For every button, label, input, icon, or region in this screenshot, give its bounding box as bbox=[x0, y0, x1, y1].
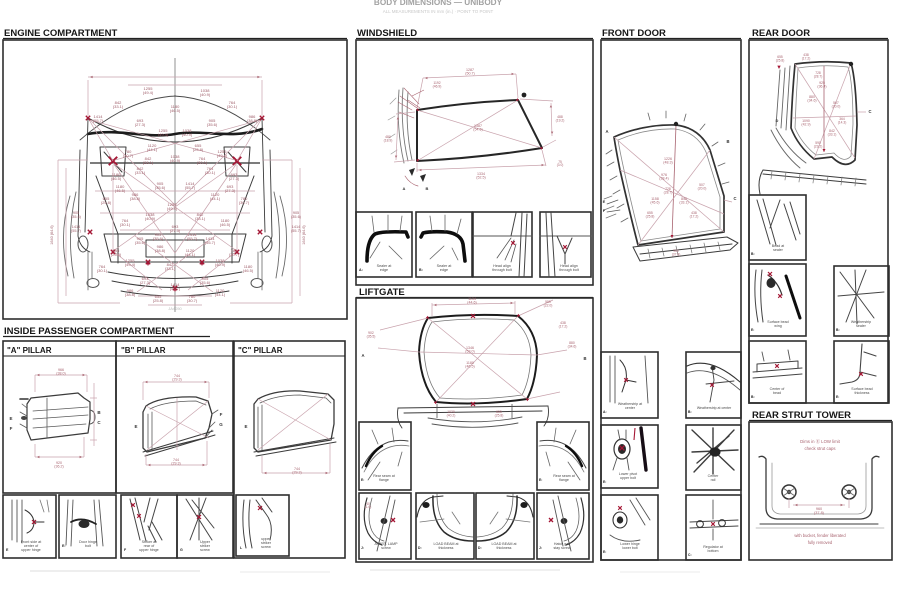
svg-text:A:: A: bbox=[603, 410, 607, 414]
svg-text:"C" PILLAR: "C" PILLAR bbox=[238, 346, 283, 355]
svg-text:upper bolt: upper bolt bbox=[620, 476, 636, 480]
svg-text:(30.7): (30.7) bbox=[187, 298, 198, 303]
svg-text:wing: wing bbox=[774, 324, 781, 328]
svg-text:(40.9): (40.9) bbox=[182, 132, 193, 137]
svg-text:F: F bbox=[10, 426, 13, 431]
svg-text:through bolt: through bolt bbox=[492, 268, 511, 272]
svg-text:(28.7): (28.7) bbox=[814, 74, 823, 78]
svg-text:(40.2): (40.2) bbox=[447, 413, 456, 417]
svg-text:(49.4): (49.4) bbox=[167, 206, 178, 211]
svg-text:(33.1): (33.1) bbox=[113, 104, 124, 109]
svg-text:(40.9): (40.9) bbox=[215, 262, 226, 267]
svg-text:(25.8): (25.8) bbox=[495, 413, 504, 417]
svg-text:sealer: sealer bbox=[856, 324, 867, 328]
svg-text:A: A bbox=[403, 186, 406, 191]
svg-text:(55.7): (55.7) bbox=[170, 286, 181, 291]
svg-text:B:: B: bbox=[751, 252, 755, 256]
svg-text:rail: rail bbox=[711, 478, 716, 482]
svg-text:D: D bbox=[776, 118, 779, 123]
svg-text:(44.1): (44.1) bbox=[185, 252, 196, 257]
svg-text:WINDSHIELD: WINDSHIELD bbox=[357, 28, 417, 39]
svg-text:thickness: thickness bbox=[855, 391, 870, 395]
svg-text:(35.6): (35.6) bbox=[153, 236, 164, 241]
svg-text:(46.5): (46.5) bbox=[170, 108, 181, 113]
svg-text:(27.3): (27.3) bbox=[170, 228, 181, 233]
svg-text:E: E bbox=[244, 424, 247, 429]
svg-text:B: B bbox=[426, 186, 429, 191]
svg-text:bottom: bottom bbox=[708, 549, 719, 553]
svg-text:thickness: thickness bbox=[497, 546, 512, 550]
svg-text:(30.1): (30.1) bbox=[205, 170, 216, 175]
svg-text:C: C bbox=[733, 196, 736, 201]
svg-text:(55.7): (55.7) bbox=[187, 236, 198, 241]
svg-text:with bucket, fender liberated: with bucket, fender liberated bbox=[794, 533, 846, 538]
svg-text:bolt: bolt bbox=[85, 544, 91, 548]
svg-text:(49.4): (49.4) bbox=[217, 153, 228, 158]
svg-text:(40.9): (40.9) bbox=[170, 158, 181, 163]
svg-text:(46.5): (46.5) bbox=[220, 222, 231, 227]
svg-text:1640 (64.6): 1640 (64.6) bbox=[50, 225, 54, 245]
svg-text:(22.0): (22.0) bbox=[544, 303, 553, 307]
svg-text:Dims in Ⓔ LOW limit: Dims in Ⓔ LOW limit bbox=[800, 438, 840, 445]
svg-text:E: E bbox=[9, 416, 12, 421]
svg-text:(30.7): (30.7) bbox=[239, 200, 250, 205]
svg-text:edge: edge bbox=[380, 268, 388, 272]
svg-text:(25.8): (25.8) bbox=[111, 252, 122, 257]
svg-text:(46.5): (46.5) bbox=[243, 268, 254, 273]
svg-text:sealer: sealer bbox=[773, 248, 784, 252]
svg-text:(46.5): (46.5) bbox=[465, 365, 474, 369]
svg-text:(37.8): (37.8) bbox=[814, 511, 825, 515]
svg-text:(14.3): (14.3) bbox=[838, 120, 847, 124]
svg-text:E:: E: bbox=[62, 544, 66, 548]
svg-text:E:: E: bbox=[361, 478, 364, 482]
svg-text:(30.1): (30.1) bbox=[97, 268, 108, 273]
svg-text:A: A bbox=[361, 353, 364, 358]
svg-text:screw: screw bbox=[200, 548, 210, 552]
svg-text:REAR STRUT TOWER: REAR STRUT TOWER bbox=[752, 410, 851, 421]
svg-text:(18.9): (18.9) bbox=[384, 138, 393, 142]
svg-text:(3.0): (3.0) bbox=[557, 163, 564, 167]
svg-text:(44.1): (44.1) bbox=[147, 147, 158, 152]
svg-text:F: F bbox=[220, 412, 223, 417]
svg-text:(38.8): (38.8) bbox=[155, 248, 166, 253]
svg-text:(25.8): (25.8) bbox=[776, 58, 785, 62]
svg-text:"B" PILLAR: "B" PILLAR bbox=[121, 346, 166, 355]
svg-text:(27.3): (27.3) bbox=[225, 188, 236, 193]
svg-text:A: A bbox=[605, 129, 608, 134]
svg-text:(28.7): (28.7) bbox=[664, 190, 673, 194]
svg-text:(38.8): (38.8) bbox=[130, 196, 141, 201]
svg-text:(17.2): (17.2) bbox=[802, 56, 811, 60]
svg-text:(34.6): (34.6) bbox=[807, 99, 816, 103]
svg-text:(55.7): (55.7) bbox=[93, 118, 104, 123]
svg-text:(33.1): (33.1) bbox=[828, 132, 837, 136]
svg-text:(36.4): (36.4) bbox=[817, 85, 826, 89]
svg-text:upper hinge: upper hinge bbox=[21, 548, 40, 552]
svg-text:B:: B: bbox=[751, 395, 755, 399]
svg-text:(30.1): (30.1) bbox=[227, 104, 238, 109]
svg-text:fully removed: fully removed bbox=[808, 540, 833, 545]
svg-text:(46.9): (46.9) bbox=[433, 84, 442, 88]
svg-text:edge: edge bbox=[440, 268, 448, 272]
svg-text:(44.6): (44.6) bbox=[467, 301, 476, 305]
svg-text:(48.3): (48.3) bbox=[663, 161, 672, 165]
svg-text:LIFTGATE: LIFTGATE bbox=[359, 287, 405, 298]
svg-text:(1.6): (1.6) bbox=[365, 505, 372, 509]
svg-text:(38.8): (38.8) bbox=[125, 292, 136, 297]
svg-text:G: G bbox=[219, 422, 223, 427]
svg-text:E: E bbox=[134, 424, 137, 429]
svg-text:(27.3): (27.3) bbox=[229, 176, 240, 181]
svg-text:flange: flange bbox=[559, 478, 569, 482]
svg-text:(35.5): (35.5) bbox=[367, 334, 376, 338]
svg-text:(29.3): (29.3) bbox=[172, 378, 181, 382]
svg-text:(30.7): (30.7) bbox=[123, 153, 134, 158]
svg-text:A:: A: bbox=[359, 268, 363, 272]
svg-text:B: B bbox=[583, 356, 586, 361]
svg-text:(33.1): (33.1) bbox=[165, 266, 176, 271]
svg-text:(25.8): (25.8) bbox=[101, 200, 112, 205]
svg-text:(29.3): (29.3) bbox=[171, 462, 180, 466]
svg-text:J:: J: bbox=[539, 546, 542, 550]
svg-text:(45.6): (45.6) bbox=[650, 201, 659, 205]
svg-text:(35.6): (35.6) bbox=[200, 280, 211, 285]
svg-text:E:: E: bbox=[603, 550, 606, 554]
svg-text:thickness: thickness bbox=[439, 546, 454, 550]
svg-text:(50.7): (50.7) bbox=[465, 72, 474, 76]
svg-text:(38.0): (38.0) bbox=[56, 372, 65, 376]
svg-text:B:: B: bbox=[419, 268, 423, 272]
svg-text:(54.6): (54.6) bbox=[473, 128, 482, 132]
svg-text:(25.8): (25.8) bbox=[646, 214, 655, 218]
svg-text:(34.6): (34.6) bbox=[568, 344, 577, 348]
svg-text:Weatherstrip at center: Weatherstrip at center bbox=[697, 406, 732, 410]
svg-text:ENGINE COMPARTMENT: ENGINE COMPARTMENT bbox=[4, 28, 117, 39]
svg-text:(20.0): (20.0) bbox=[832, 104, 841, 108]
svg-text:(37.8): (37.8) bbox=[672, 252, 681, 256]
svg-text:D:: D: bbox=[478, 546, 482, 550]
svg-text:FRONT DOOR: FRONT DOOR bbox=[602, 28, 666, 39]
svg-text:(53.0): (53.0) bbox=[465, 350, 474, 354]
svg-text:(49.4): (49.4) bbox=[158, 132, 169, 137]
svg-text:(20.0): (20.0) bbox=[698, 186, 707, 190]
svg-text:ALL MEASUREMENTS IN mm (in.): ALL MEASUREMENTS IN mm (in.) · POINT TO … bbox=[383, 9, 494, 14]
svg-text:(40.9): (40.9) bbox=[145, 216, 156, 221]
svg-text:(55.7): (55.7) bbox=[291, 229, 302, 233]
svg-text:1640 (64.6): 1640 (64.6) bbox=[302, 225, 306, 245]
svg-text:(30.7): (30.7) bbox=[229, 252, 240, 257]
svg-text:(44.1): (44.1) bbox=[210, 196, 221, 201]
svg-text:E:: E: bbox=[751, 328, 754, 332]
svg-text:screw: screw bbox=[261, 545, 271, 549]
svg-text:bead: bead bbox=[773, 391, 781, 395]
svg-text:B:: B: bbox=[836, 328, 840, 332]
svg-text:REAR DOOR: REAR DOOR bbox=[752, 28, 810, 39]
svg-text:(25.8): (25.8) bbox=[153, 298, 164, 303]
svg-text:through bolt: through bolt bbox=[559, 268, 578, 272]
svg-text:center: center bbox=[625, 406, 636, 410]
svg-text:(35.6): (35.6) bbox=[291, 215, 302, 219]
svg-text:(49.4): (49.4) bbox=[125, 262, 136, 267]
svg-text:(30.1): (30.1) bbox=[197, 160, 208, 165]
svg-text:(33.1): (33.1) bbox=[135, 170, 146, 175]
svg-text:E:: E: bbox=[836, 395, 839, 399]
svg-text:(44.1): (44.1) bbox=[215, 292, 226, 297]
svg-text:stay screw: stay screw bbox=[554, 546, 571, 550]
svg-text:(29.3): (29.3) bbox=[292, 471, 301, 475]
svg-text:E: E bbox=[603, 199, 606, 204]
svg-text:(46.5): (46.5) bbox=[111, 176, 122, 181]
svg-text:(27.3): (27.3) bbox=[135, 122, 146, 127]
svg-text:(40.9): (40.9) bbox=[200, 92, 211, 97]
svg-text:G: G bbox=[180, 548, 183, 552]
svg-text:(55.7): (55.7) bbox=[185, 185, 196, 190]
svg-text:(55.7): (55.7) bbox=[71, 229, 82, 233]
svg-text:BODY DIMENSIONS — UNIBODY: BODY DIMENSIONS — UNIBODY bbox=[374, 0, 503, 7]
svg-text:(33.1): (33.1) bbox=[679, 201, 688, 205]
svg-text:B:: B: bbox=[688, 410, 692, 414]
svg-text:(27.3): (27.3) bbox=[140, 280, 151, 285]
svg-text:(46.5): (46.5) bbox=[115, 188, 126, 193]
svg-text:flange: flange bbox=[379, 478, 389, 482]
svg-text:(42.9): (42.9) bbox=[801, 123, 810, 127]
svg-text:(25.8): (25.8) bbox=[193, 147, 204, 152]
svg-text:(35.6): (35.6) bbox=[207, 122, 218, 127]
svg-text:screw: screw bbox=[381, 546, 391, 550]
svg-text:INSIDE PASSENGER COMPARTMENT: INSIDE PASSENGER COMPARTMENT bbox=[4, 326, 174, 337]
svg-text:(52.5): (52.5) bbox=[476, 176, 485, 180]
svg-text:(30.1): (30.1) bbox=[120, 222, 131, 227]
svg-text:(35.6): (35.6) bbox=[71, 215, 82, 219]
svg-text:(35.6): (35.6) bbox=[155, 185, 166, 190]
svg-text:upper hinge: upper hinge bbox=[139, 548, 158, 552]
svg-text:(38.4): (38.4) bbox=[659, 177, 668, 181]
svg-text:(17.2): (17.2) bbox=[690, 214, 699, 218]
svg-text:B: B bbox=[726, 139, 729, 144]
svg-text:C: C bbox=[868, 109, 871, 114]
svg-text:JA4050: JA4050 bbox=[168, 306, 182, 311]
svg-text:C:: C: bbox=[688, 553, 692, 557]
svg-text:check strut caps: check strut caps bbox=[804, 446, 835, 451]
svg-text:(49.4): (49.4) bbox=[143, 90, 154, 95]
svg-text:(33.1): (33.1) bbox=[195, 216, 206, 221]
svg-text:(23.2): (23.2) bbox=[814, 144, 823, 148]
svg-text:E:: E: bbox=[539, 478, 542, 482]
svg-text:"A" PILLAR: "A" PILLAR bbox=[7, 346, 52, 355]
svg-text:(19.2): (19.2) bbox=[556, 118, 565, 122]
svg-text:D:: D: bbox=[418, 546, 422, 550]
svg-text:(17.2): (17.2) bbox=[559, 324, 568, 328]
svg-text:E:: E: bbox=[603, 480, 606, 484]
svg-text:J:: J: bbox=[361, 546, 364, 550]
svg-text:lower bolt: lower bolt bbox=[622, 546, 637, 550]
svg-text:(35.6): (35.6) bbox=[135, 240, 146, 245]
svg-text:(36.2): (36.2) bbox=[54, 465, 63, 469]
svg-text:(38.8): (38.8) bbox=[247, 118, 258, 123]
svg-text:(55.7): (55.7) bbox=[205, 240, 216, 245]
svg-text:(33.1): (33.1) bbox=[143, 160, 154, 165]
